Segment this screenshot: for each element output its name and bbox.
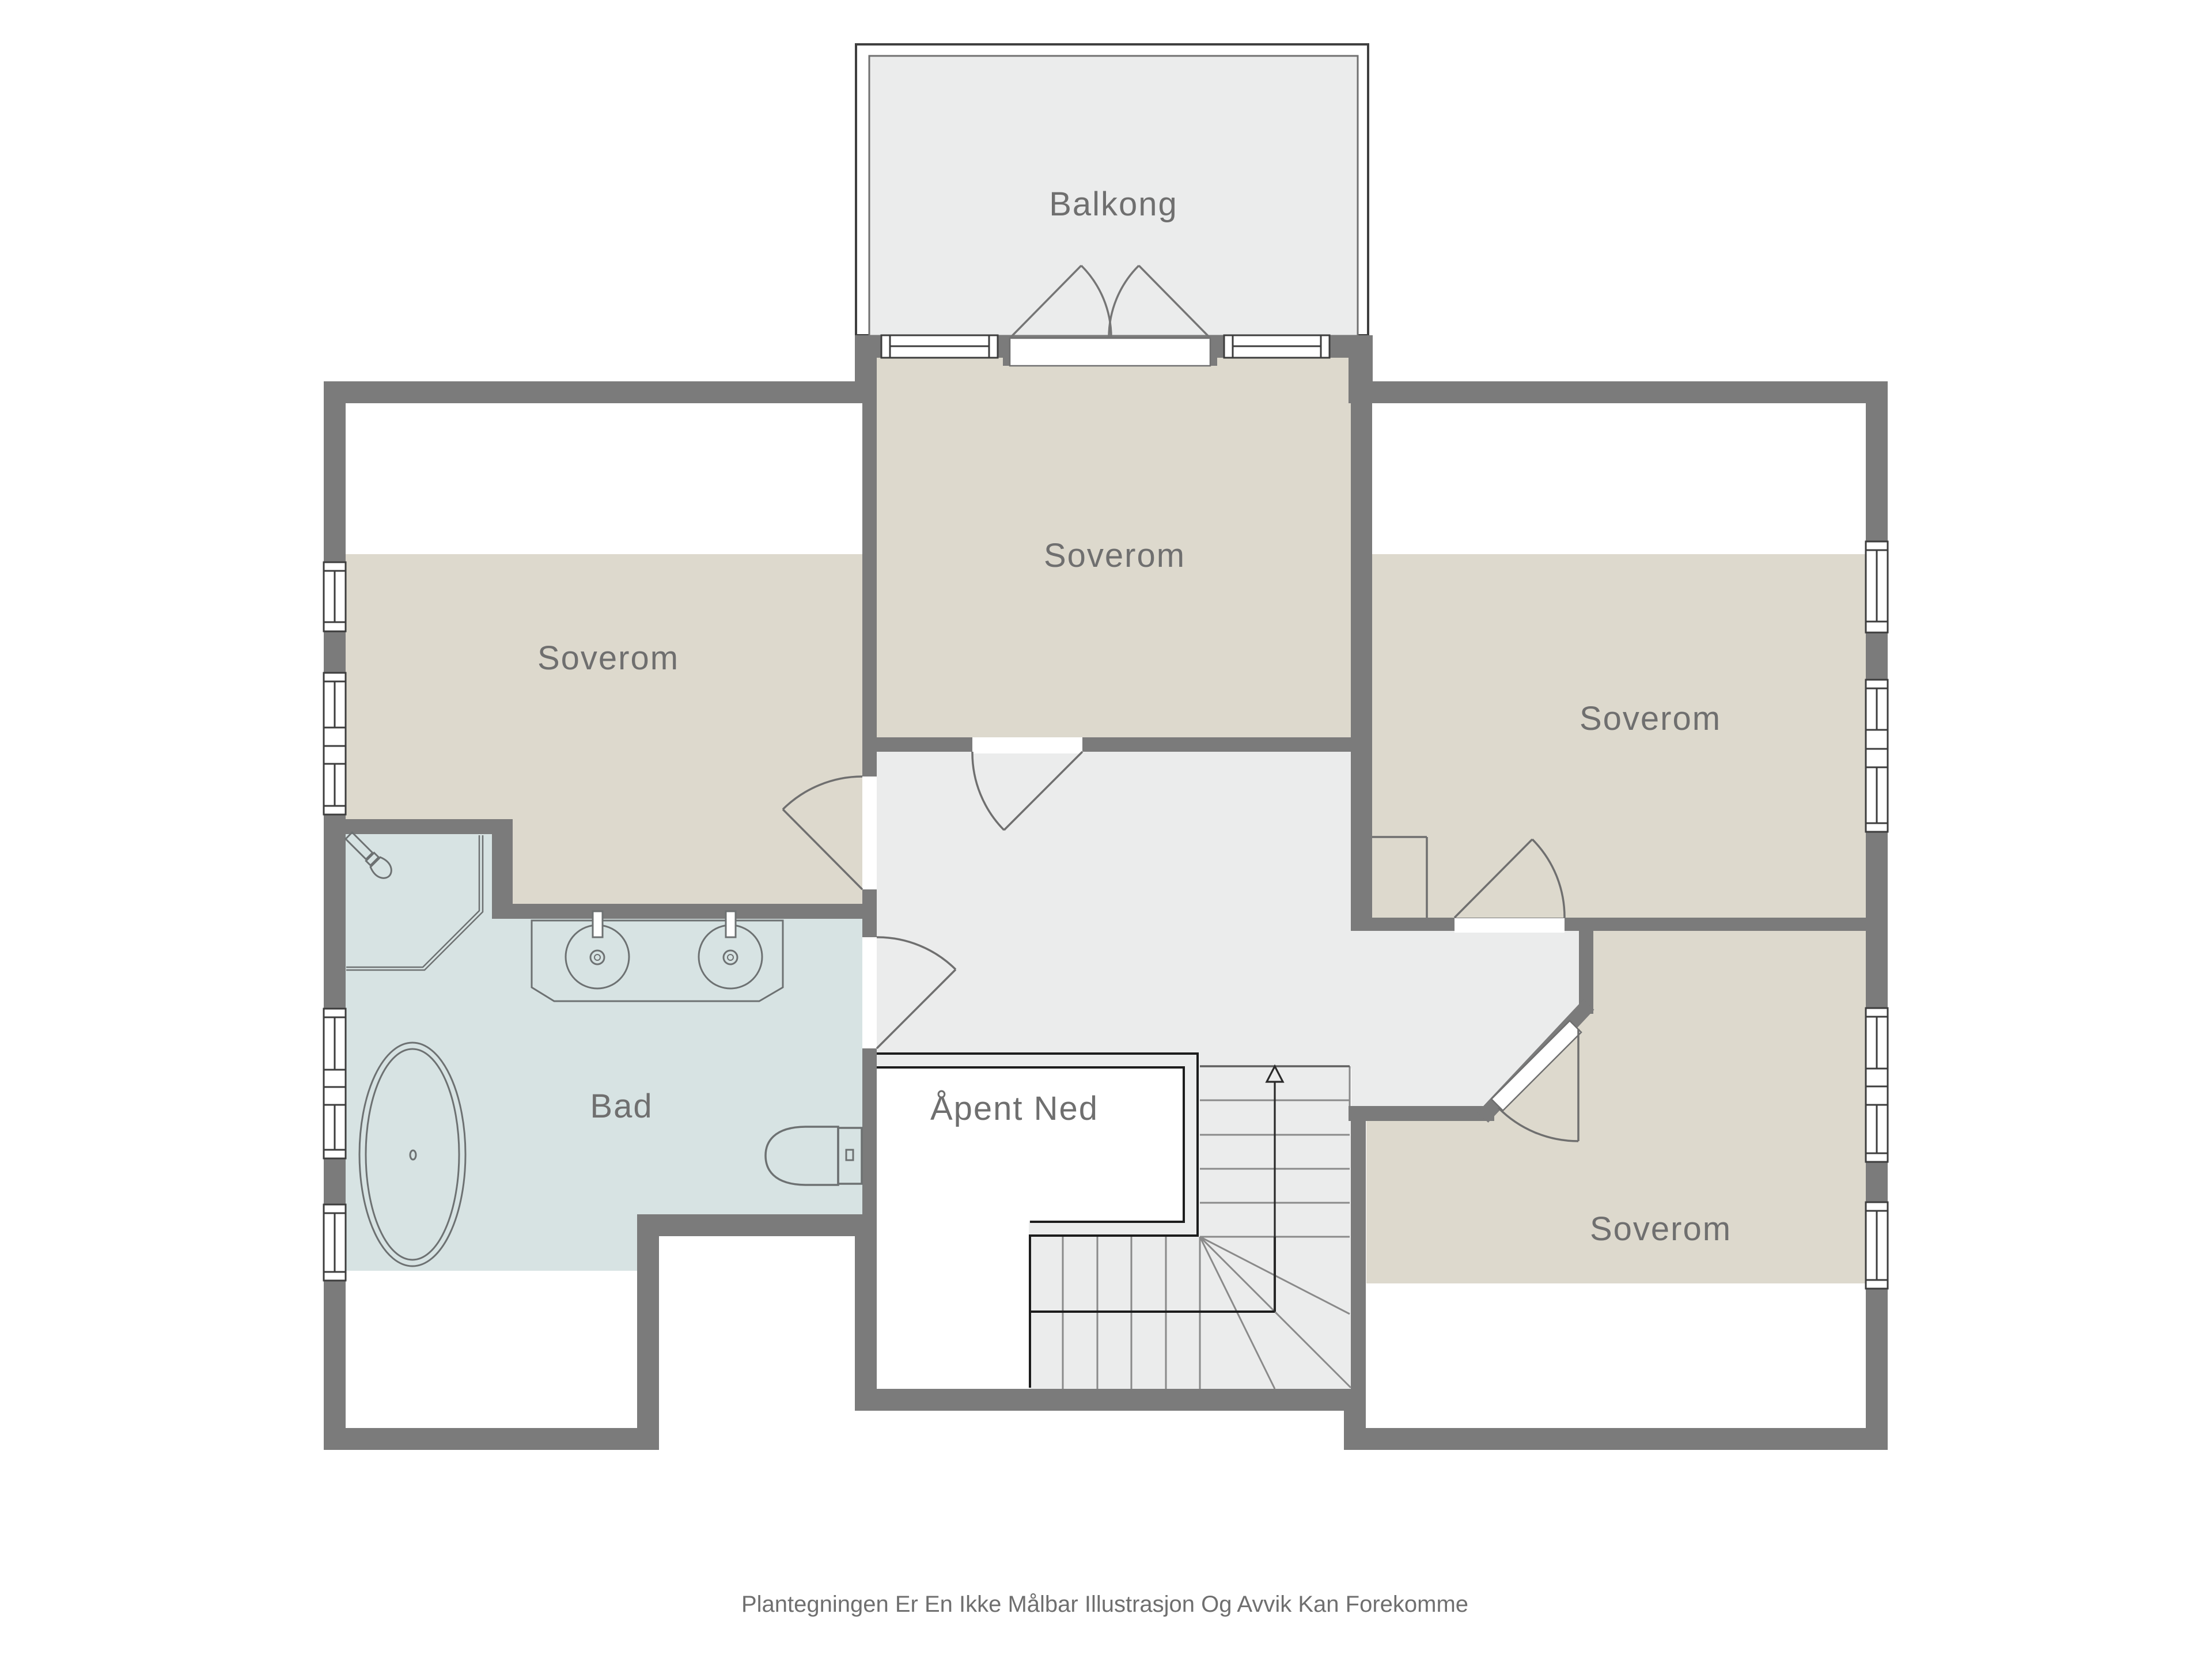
- svg-text:Soverom: Soverom: [537, 639, 679, 677]
- svg-text:Soverom: Soverom: [1044, 537, 1185, 574]
- svg-text:Balkong: Balkong: [1049, 185, 1178, 223]
- svg-text:Soverom: Soverom: [1580, 700, 1721, 737]
- svg-text:Soverom: Soverom: [1590, 1210, 1732, 1248]
- svg-text:Plantegningen Er En Ikke Målba: Plantegningen Er En Ikke Målbar Illustra…: [741, 1592, 1468, 1617]
- svg-text:Bad: Bad: [590, 1088, 653, 1125]
- svg-text:Åpent Ned: Åpent Ned: [930, 1090, 1099, 1127]
